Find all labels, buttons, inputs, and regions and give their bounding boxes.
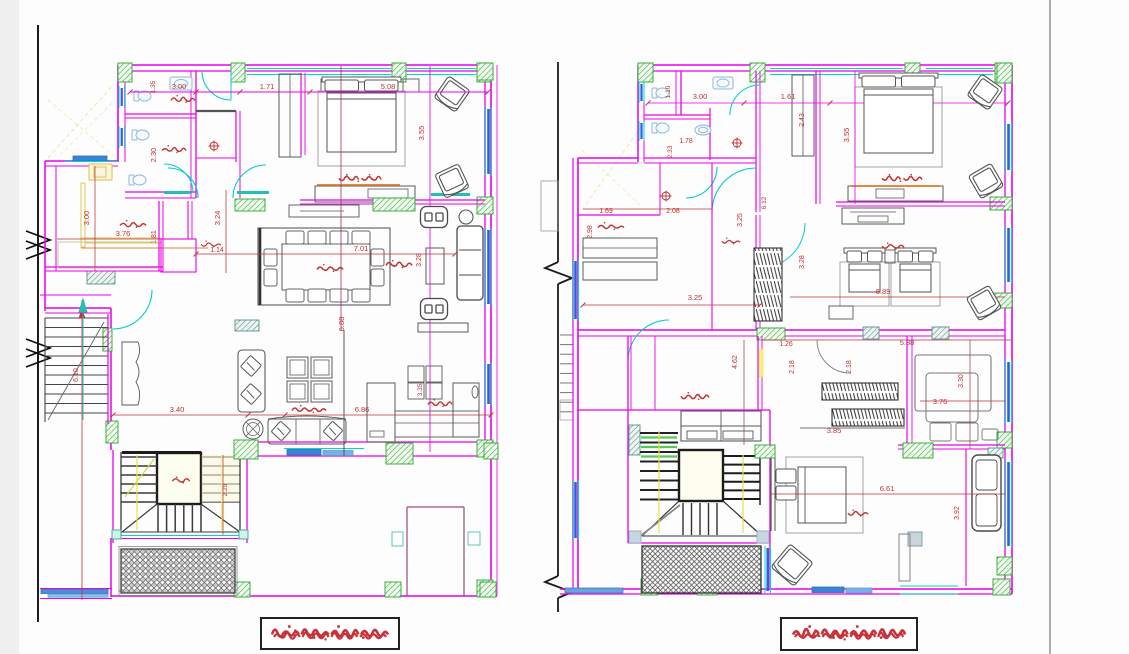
svg-text:2.43: 2.43	[799, 113, 806, 127]
svg-text:5.08: 5.08	[381, 82, 396, 91]
svg-text:3.25: 3.25	[737, 213, 744, 227]
svg-text:1.10: 1.10	[665, 85, 672, 98]
svg-text:3.55: 3.55	[842, 128, 851, 143]
svg-text:3.00: 3.00	[693, 92, 708, 101]
svg-text:1.14: 1.14	[210, 247, 224, 254]
svg-text:4.62: 4.62	[732, 355, 739, 369]
svg-text:3.55: 3.55	[417, 126, 426, 141]
svg-text:2.18: 2.18	[789, 360, 796, 374]
svg-text:3.76: 3.76	[116, 229, 131, 238]
svg-text:2.33: 2.33	[667, 145, 674, 158]
svg-text:3.25: 3.25	[688, 293, 703, 302]
svg-text:1.78: 1.78	[679, 138, 693, 145]
svg-text:1.35: 1.35	[150, 80, 157, 93]
svg-text:2.30: 2.30	[149, 148, 158, 163]
svg-text:6.12: 6.12	[761, 196, 768, 209]
svg-text:3.28: 3.28	[799, 255, 806, 269]
svg-text:3.24: 3.24	[213, 211, 222, 226]
svg-text:1.61: 1.61	[781, 92, 796, 101]
svg-text:1.71: 1.71	[260, 82, 275, 91]
svg-text:3.85: 3.85	[827, 426, 842, 435]
svg-text:3.76: 3.76	[933, 397, 948, 406]
svg-text:6.89: 6.89	[876, 287, 891, 296]
svg-text:3.28: 3.28	[416, 253, 423, 267]
svg-text:6.61: 6.61	[880, 484, 895, 493]
svg-text:3.40: 3.40	[170, 405, 185, 414]
svg-text:6.88: 6.88	[337, 317, 346, 332]
svg-text:3.00: 3.00	[82, 211, 91, 226]
svg-text:3.35: 3.35	[417, 383, 424, 396]
svg-text:7.01: 7.01	[354, 244, 369, 253]
svg-text:6.10: 6.10	[73, 368, 80, 382]
svg-text:3.92: 3.92	[954, 506, 961, 520]
svg-text:3.00: 3.00	[172, 82, 187, 91]
svg-text:2.98: 2.98	[587, 225, 594, 239]
svg-text:1.26: 1.26	[779, 341, 793, 348]
svg-text:2.18: 2.18	[846, 360, 853, 374]
svg-text:3.30: 3.30	[958, 374, 965, 388]
